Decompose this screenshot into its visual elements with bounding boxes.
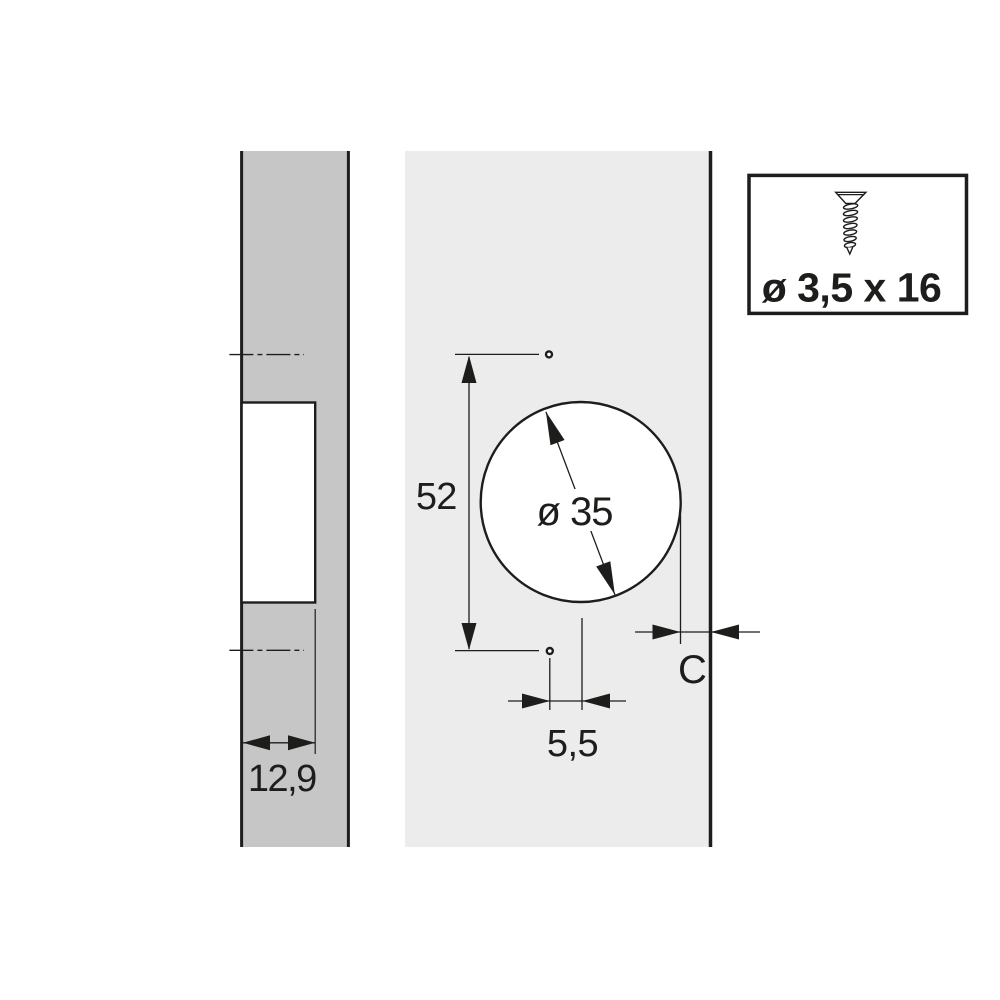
svg-text:ø 3,5 x 16: ø 3,5 x 16 [762,265,942,311]
svg-text:12,9: 12,9 [248,758,316,800]
svg-text:5,5: 5,5 [547,723,598,765]
svg-text:ø 35: ø 35 [536,490,612,534]
svg-text:52: 52 [416,476,457,518]
svg-text:C: C [678,648,707,692]
